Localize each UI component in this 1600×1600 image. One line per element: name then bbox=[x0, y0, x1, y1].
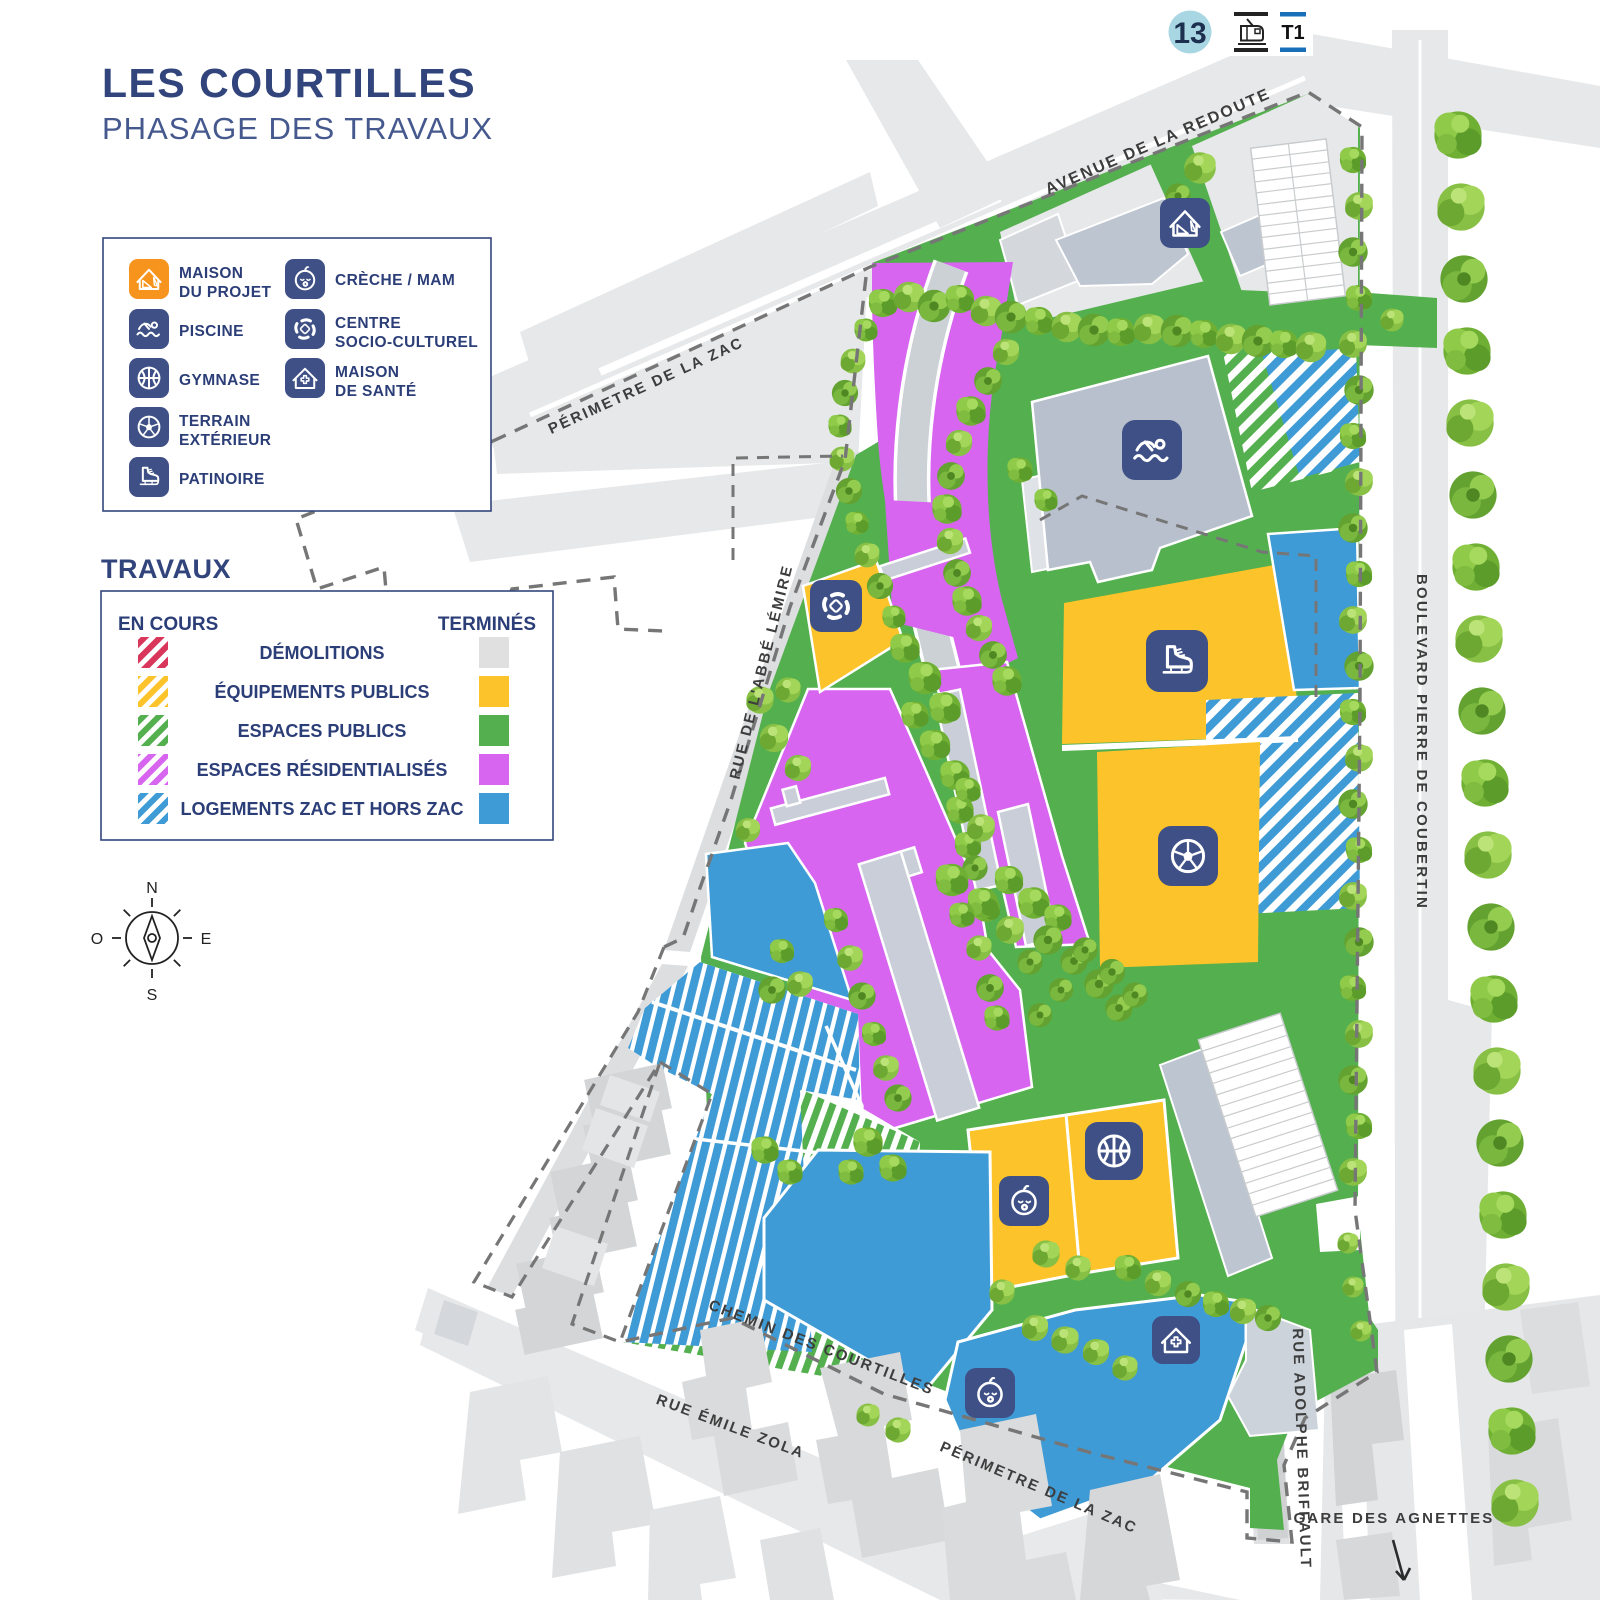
svg-text:GYMNASE: GYMNASE bbox=[179, 372, 260, 389]
svg-text:SOCIO-CULTUREL: SOCIO-CULTUREL bbox=[335, 334, 478, 351]
svg-text:DU PROJET: DU PROJET bbox=[179, 284, 271, 301]
svg-text:ESPACES PUBLICS: ESPACES PUBLICS bbox=[238, 721, 407, 741]
svg-text:LOGEMENTS ZAC ET HORS ZAC: LOGEMENTS ZAC ET HORS ZAC bbox=[181, 799, 464, 819]
svg-text:DE SANTÉ: DE SANTÉ bbox=[335, 383, 417, 400]
svg-text:13: 13 bbox=[1173, 17, 1206, 50]
svg-text:ÉQUIPEMENTS PUBLICS: ÉQUIPEMENTS PUBLICS bbox=[214, 681, 429, 702]
svg-text:E: E bbox=[201, 931, 212, 948]
svg-text:CRÈCHE / MAM: CRÈCHE / MAM bbox=[335, 272, 455, 289]
svg-text:ESPACES RÉSIDENTIALISÉS: ESPACES RÉSIDENTIALISÉS bbox=[197, 759, 448, 780]
svg-text:CENTRE: CENTRE bbox=[335, 315, 401, 332]
svg-text:TERMINÉS: TERMINÉS bbox=[438, 613, 536, 635]
svg-text:EN COURS: EN COURS bbox=[118, 614, 218, 635]
svg-text:T1: T1 bbox=[1281, 22, 1304, 44]
svg-text:TRAVAUX: TRAVAUX bbox=[101, 554, 231, 584]
svg-text:DÉMOLITIONS: DÉMOLITIONS bbox=[260, 642, 385, 663]
svg-text:MAISON: MAISON bbox=[179, 265, 243, 282]
svg-text:O: O bbox=[91, 931, 103, 948]
svg-text:S: S bbox=[147, 987, 158, 1004]
svg-text:LES COURTILLES: LES COURTILLES bbox=[102, 60, 476, 106]
svg-text:PHASAGE DES TRAVAUX: PHASAGE DES TRAVAUX bbox=[102, 111, 493, 146]
svg-text:GARE DES AGNETTES: GARE DES AGNETTES bbox=[1293, 1510, 1494, 1527]
svg-text:PATINOIRE: PATINOIRE bbox=[179, 471, 265, 488]
svg-text:BOULEVARD PIERRE DE COUBERTIN: BOULEVARD PIERRE DE COUBERTIN bbox=[1413, 574, 1430, 910]
svg-text:TERRAIN: TERRAIN bbox=[179, 413, 251, 430]
svg-text:MAISON: MAISON bbox=[335, 364, 399, 381]
svg-text:EXTÉRIEUR: EXTÉRIEUR bbox=[179, 432, 271, 449]
svg-text:N: N bbox=[146, 880, 158, 897]
svg-text:PISCINE: PISCINE bbox=[179, 323, 244, 340]
